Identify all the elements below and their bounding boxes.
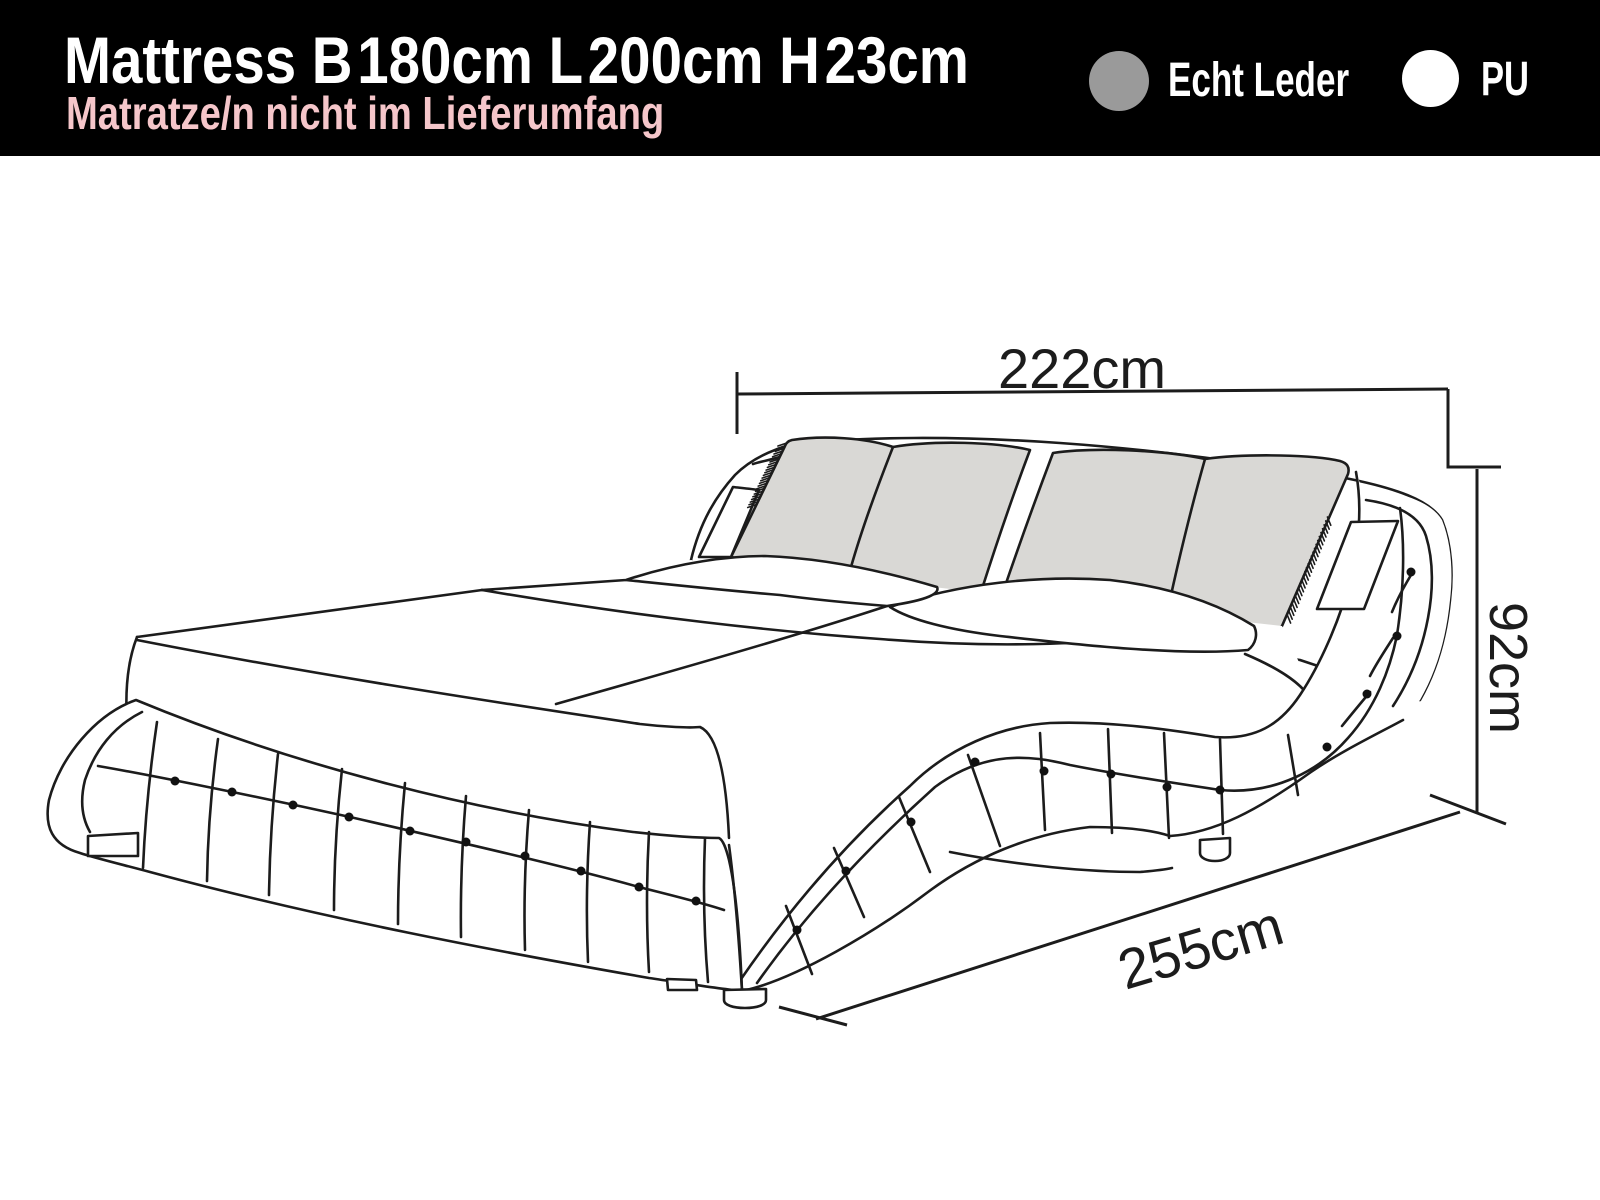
svg-text:255cm: 255cm xyxy=(1111,893,1290,1001)
svg-text:92cm: 92cm xyxy=(1478,602,1538,734)
svg-text:222cm: 222cm xyxy=(998,337,1166,400)
